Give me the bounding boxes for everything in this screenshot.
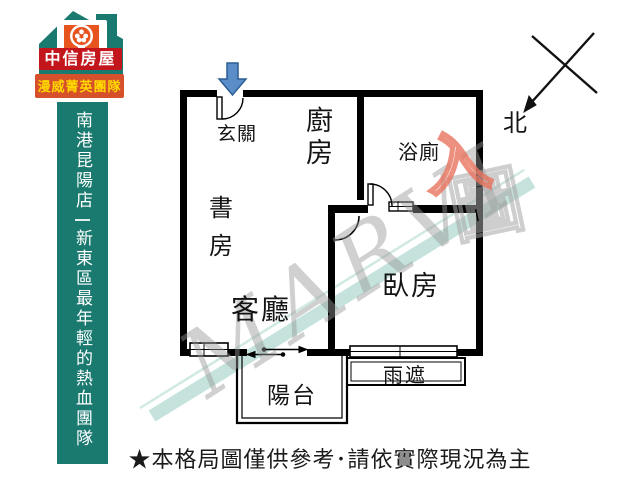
room-label-living: 客廳: [231, 288, 291, 328]
floor-plan-page: 中信房屋 漫威菁英團隊 南港昆陽店 新東區最年輕的熱血團隊 MARVI 圖 入 …: [0, 0, 640, 480]
room-label-bath: 浴廁: [398, 136, 440, 165]
bedroom-door: [335, 216, 359, 240]
room-label-kitchen: 廚房: [306, 105, 336, 169]
store-slogan: 新東區最年輕的熱血團隊: [57, 229, 108, 449]
room-label-bedroom: 臥房: [382, 264, 440, 303]
bedroom-window: [350, 346, 457, 357]
store-column: 南港昆陽店 新東區最年輕的熱血團隊: [57, 102, 108, 464]
bath-window: [389, 202, 413, 211]
room-label-study: 書房: [209, 190, 235, 266]
column-divider: [75, 219, 90, 221]
room-label-entry: 玄關: [217, 119, 257, 146]
room-label-canopy: 雨遮: [383, 359, 427, 388]
disclaimer-text: ★本格局圖僅供參考･請依實際現況為主★: [120, 442, 540, 480]
brand-banner: 中信房屋: [39, 48, 122, 70]
room-label-balcony: 陽台: [267, 376, 317, 410]
north-label: 北: [503, 103, 527, 138]
entry-arrow-icon: [219, 63, 246, 95]
entry-door: [217, 97, 243, 119]
team-badge: 漫威菁英團隊: [35, 74, 124, 98]
store-name: 南港昆陽店: [57, 111, 108, 211]
living-window: [190, 343, 228, 356]
north-indicator-icon: [524, 33, 597, 112]
